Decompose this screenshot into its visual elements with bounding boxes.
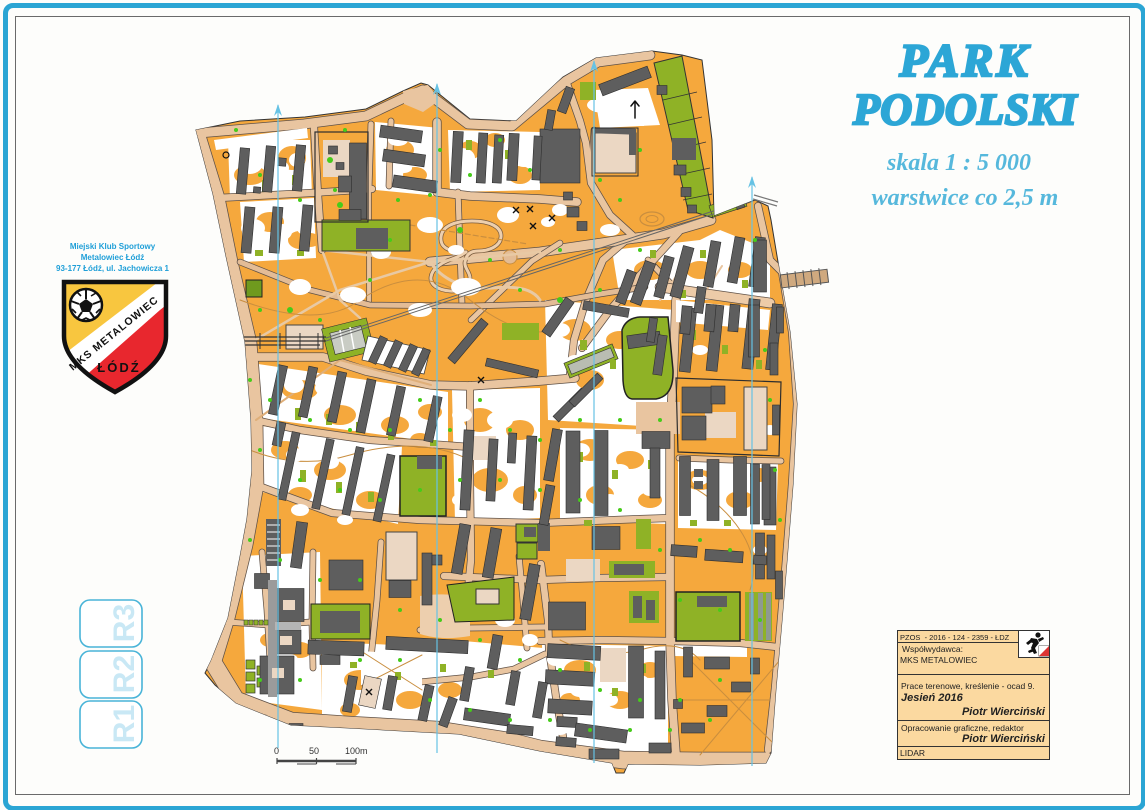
svg-text:50: 50	[309, 746, 319, 756]
svg-text:0: 0	[274, 746, 279, 756]
svg-text:R3: R3	[108, 604, 141, 642]
svg-text:R1: R1	[108, 705, 141, 743]
svg-text:100m: 100m	[345, 746, 368, 756]
svg-text:ŁÓDŹ: ŁÓDŹ	[97, 360, 140, 375]
svg-text:R2: R2	[108, 655, 141, 693]
